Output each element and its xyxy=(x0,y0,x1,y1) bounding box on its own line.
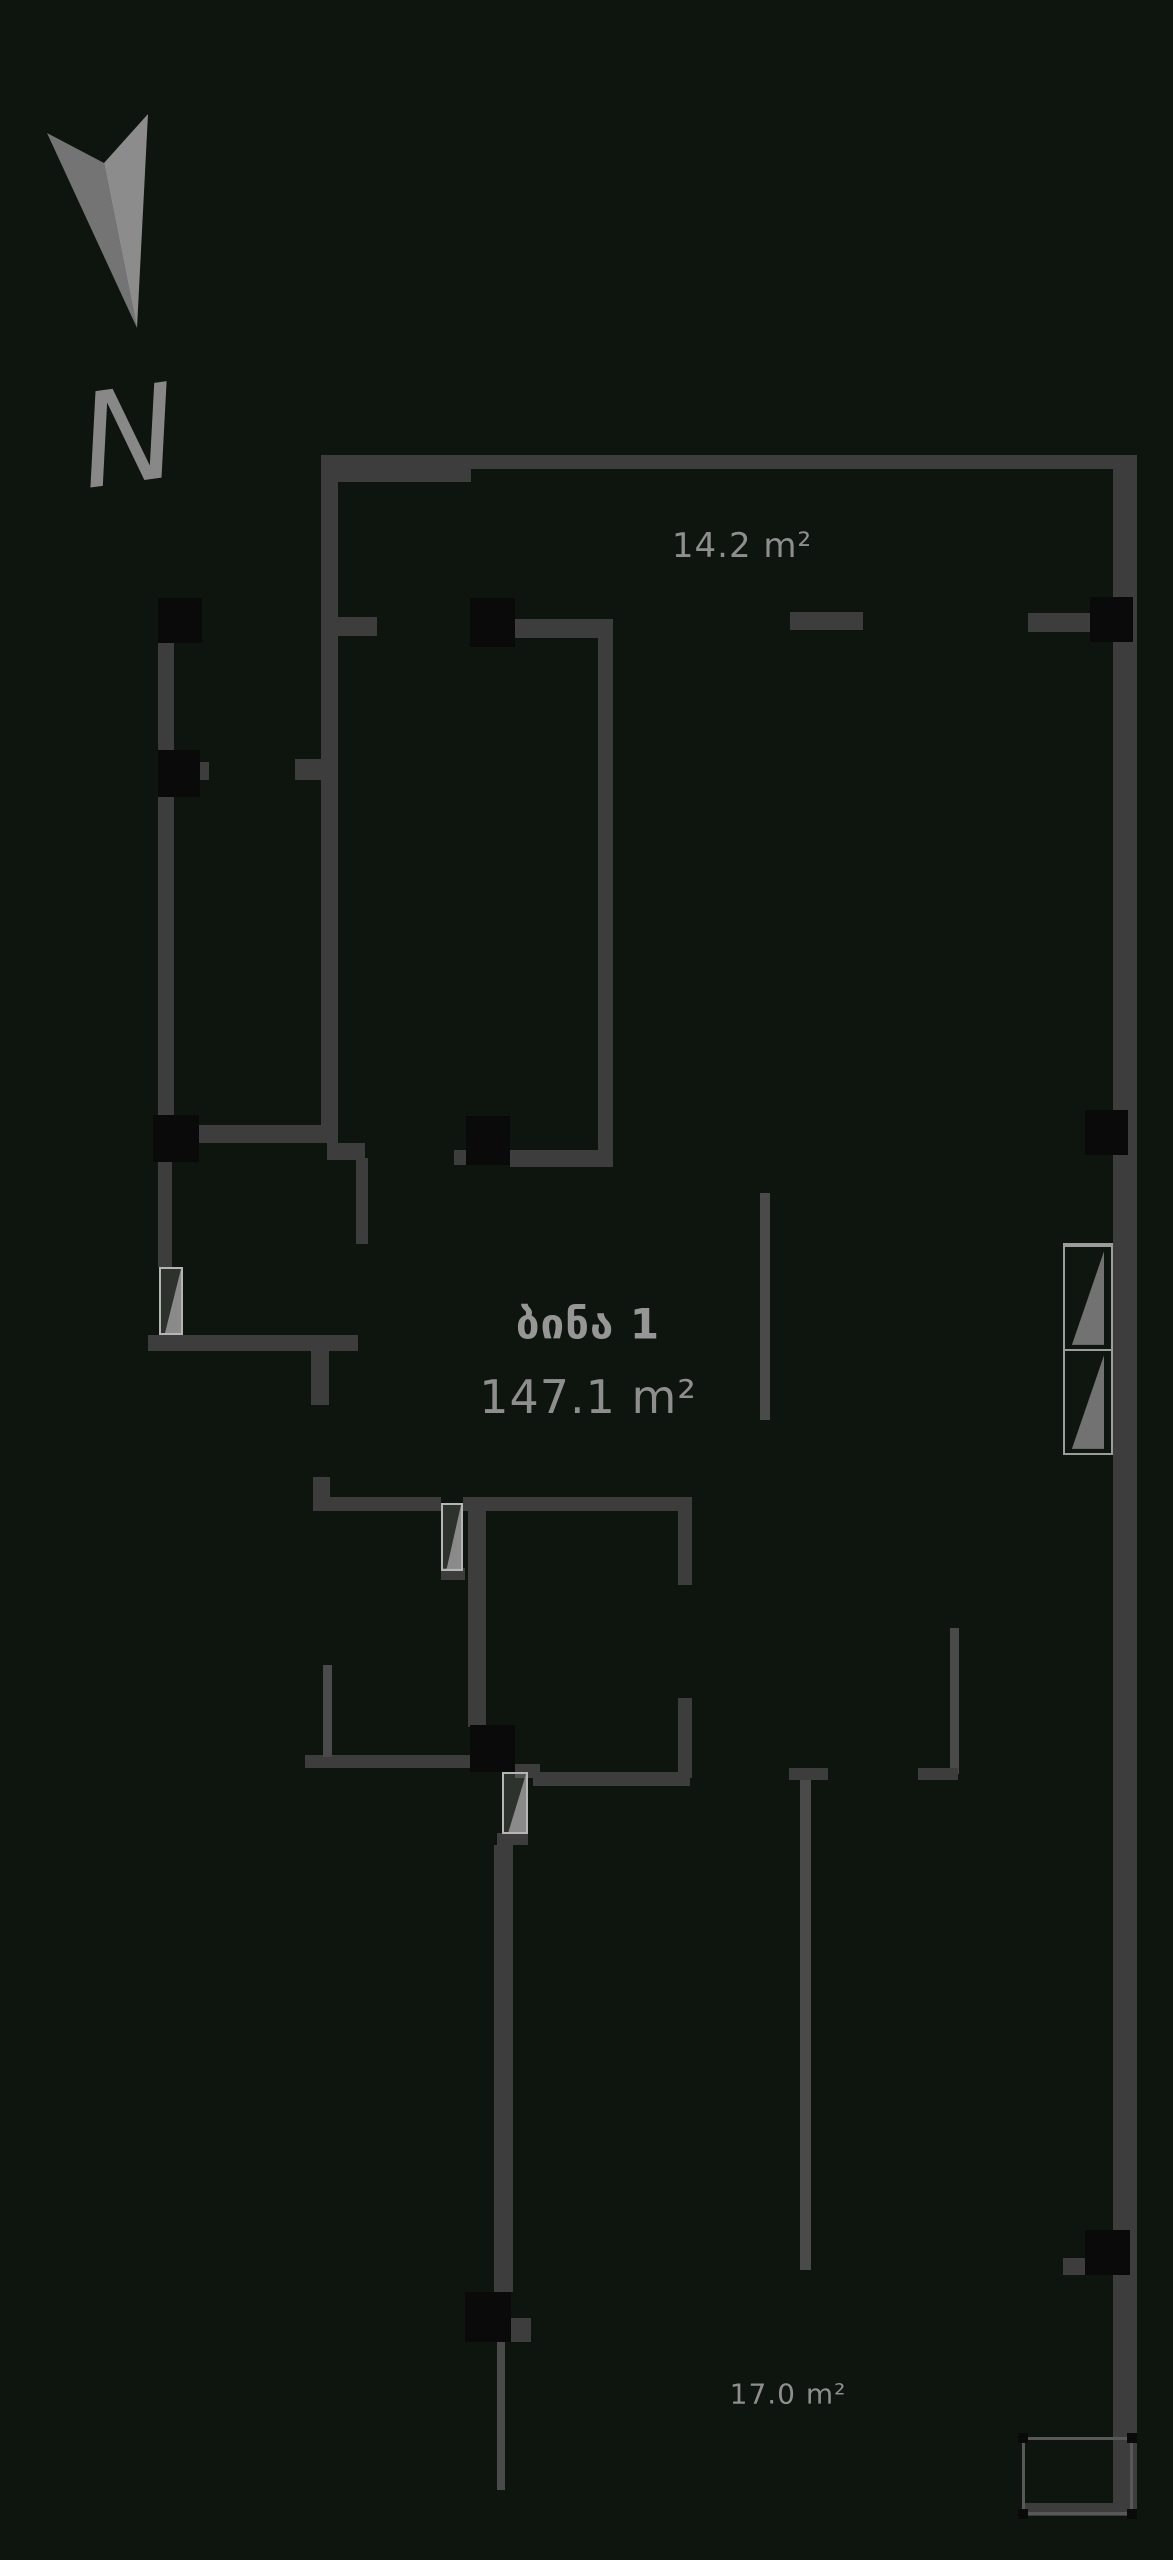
window-frame xyxy=(1063,1243,1113,1455)
wall-segment xyxy=(1113,458,1137,2513)
plan-layer xyxy=(0,0,1173,2560)
door-leaf xyxy=(159,1267,183,1335)
wall-segment xyxy=(471,455,1137,469)
wall-segment xyxy=(598,638,613,1155)
wall-segment xyxy=(313,1477,330,1499)
structural-column xyxy=(158,598,202,643)
wall-segment xyxy=(789,1768,828,1780)
structural-column xyxy=(1090,597,1133,642)
wall-segment xyxy=(356,1158,368,1244)
window-pane xyxy=(1065,1245,1111,1349)
wall-segment xyxy=(313,1497,441,1511)
structural-column xyxy=(466,1116,510,1165)
railing-post xyxy=(1018,2433,1028,2443)
door-swing xyxy=(161,1269,181,1333)
wall-segment xyxy=(511,2318,531,2342)
structural-column xyxy=(470,1725,515,1772)
structural-column xyxy=(153,1115,199,1162)
wall-segment xyxy=(1063,2258,1085,2275)
door-leaf xyxy=(502,1772,528,1834)
wall-segment xyxy=(918,1768,958,1780)
wall-segment xyxy=(323,1665,332,1757)
door-swing xyxy=(504,1774,526,1832)
wall-segment xyxy=(533,1772,690,1786)
wall-segment xyxy=(510,1150,613,1167)
railing-post xyxy=(1127,2509,1137,2519)
wall-segment xyxy=(148,1335,358,1351)
structural-column xyxy=(465,2292,511,2342)
wall-segment xyxy=(950,1628,959,1774)
wall-segment xyxy=(678,1698,692,1778)
railing-post xyxy=(1018,2509,1028,2519)
door-leaf xyxy=(441,1503,463,1571)
wall-segment xyxy=(158,598,174,1162)
wall-segment xyxy=(800,1780,811,2270)
wall-segment xyxy=(678,1497,692,1585)
room-label-bottom-balcony: 17.0 m² xyxy=(730,2378,847,2411)
wall-segment xyxy=(321,455,338,1143)
wall-segment xyxy=(760,1193,770,1420)
balcony-railing xyxy=(1022,2437,1133,2515)
wall-segment xyxy=(200,762,209,780)
wall-segment xyxy=(295,759,321,780)
window-pane xyxy=(1065,1349,1111,1453)
wall-segment xyxy=(497,1833,528,1845)
wall-segment xyxy=(311,1351,329,1405)
window-pane-shade xyxy=(1072,1251,1104,1345)
wall-segment xyxy=(158,1162,172,1267)
wall-segment xyxy=(454,1150,466,1165)
wall-segment xyxy=(321,455,471,482)
wall-segment xyxy=(497,2342,505,2490)
window-pane-shade xyxy=(1072,1355,1104,1449)
wall-segment xyxy=(1028,613,1090,632)
wall-segment xyxy=(515,619,613,638)
door-swing xyxy=(443,1505,461,1569)
wall-segment xyxy=(463,1497,690,1511)
wall-segment xyxy=(790,612,863,630)
railing-post xyxy=(1127,2433,1137,2443)
apartment-area: 147.1 m² xyxy=(479,1370,697,1424)
room-label-top-balcony: 14.2 m² xyxy=(672,526,812,566)
structural-column xyxy=(1085,2230,1130,2275)
structural-column xyxy=(158,750,200,797)
wall-segment xyxy=(494,1845,513,2292)
wall-segment xyxy=(199,1125,327,1143)
structural-column xyxy=(470,598,515,647)
wall-segment xyxy=(338,617,377,636)
apartment-name: ბინა 1 xyxy=(516,1300,660,1349)
wall-segment xyxy=(468,1511,486,1727)
structural-column xyxy=(1085,1110,1128,1155)
